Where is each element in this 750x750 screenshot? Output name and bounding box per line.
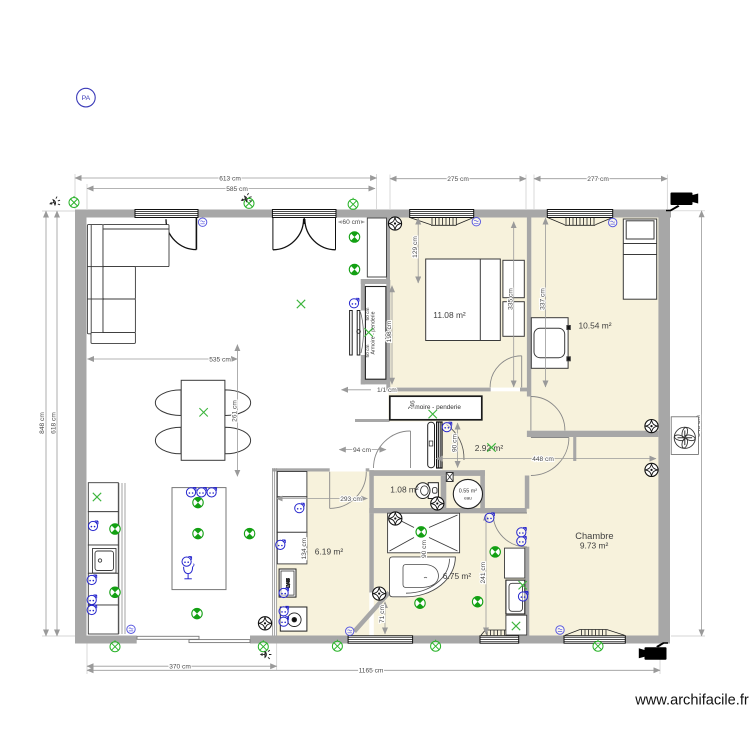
svg-text:0.55 m²: 0.55 m²	[459, 489, 477, 495]
svg-text:10.54 m²: 10.54 m²	[578, 320, 611, 330]
svg-text:PA: PA	[82, 95, 91, 102]
svg-text:275 cm: 275 cm	[447, 176, 469, 183]
svg-text:848 cm: 848 cm	[39, 412, 46, 434]
svg-text:www.archifacile.fr: www.archifacile.fr	[634, 693, 749, 709]
svg-text:261 cm: 261 cm	[231, 400, 238, 422]
svg-text:50 cm: 50 cm	[365, 344, 371, 357]
svg-text:90 cm: 90 cm	[451, 434, 458, 452]
svg-text:129 cm: 129 cm	[412, 236, 419, 258]
svg-text:1165 cm: 1165 cm	[359, 668, 384, 675]
svg-text:94 cm: 94 cm	[353, 447, 371, 454]
svg-text:46: 46	[410, 400, 417, 408]
svg-text:335 cm: 335 cm	[508, 288, 515, 310]
svg-text:2.92 m²: 2.92 m²	[475, 443, 504, 453]
svg-text:11.08 m²: 11.08 m²	[433, 310, 466, 320]
svg-text:Armoire - penderie: Armoire - penderie	[371, 311, 377, 354]
svg-text:90 cm: 90 cm	[421, 540, 428, 558]
svg-text:1/1 cm: 1/1 cm	[377, 387, 397, 394]
svg-text:Chambre: Chambre	[575, 531, 613, 541]
svg-text:eau: eau	[464, 496, 472, 501]
svg-text:50 cm: 50 cm	[365, 307, 371, 320]
svg-text:337 cm: 337 cm	[539, 288, 546, 310]
svg-text:535 cm: 535 cm	[209, 356, 231, 363]
svg-text:198 cm: 198 cm	[386, 320, 393, 342]
svg-text:293 cm: 293 cm	[340, 496, 362, 503]
svg-text:618 cm: 618 cm	[51, 412, 58, 434]
svg-text:LV45: LV45	[286, 578, 291, 588]
svg-text:277 cm: 277 cm	[587, 176, 609, 183]
svg-text:1.08 m²: 1.08 m²	[390, 484, 419, 494]
svg-text:6.75 m²: 6.75 m²	[443, 571, 472, 581]
svg-text:241 cm: 241 cm	[480, 561, 487, 583]
svg-text:585 cm: 585 cm	[226, 186, 248, 193]
svg-text:613 cm: 613 cm	[219, 175, 241, 182]
svg-text:6.19 m²: 6.19 m²	[315, 546, 344, 556]
svg-text:71 cm: 71 cm	[379, 605, 386, 623]
svg-text:448 cm: 448 cm	[532, 456, 554, 463]
svg-text:134 cm: 134 cm	[301, 537, 308, 559]
svg-text:60 cm: 60 cm	[342, 219, 360, 226]
svg-text:9.73 m²: 9.73 m²	[580, 540, 609, 550]
svg-text:370 cm: 370 cm	[169, 664, 191, 671]
